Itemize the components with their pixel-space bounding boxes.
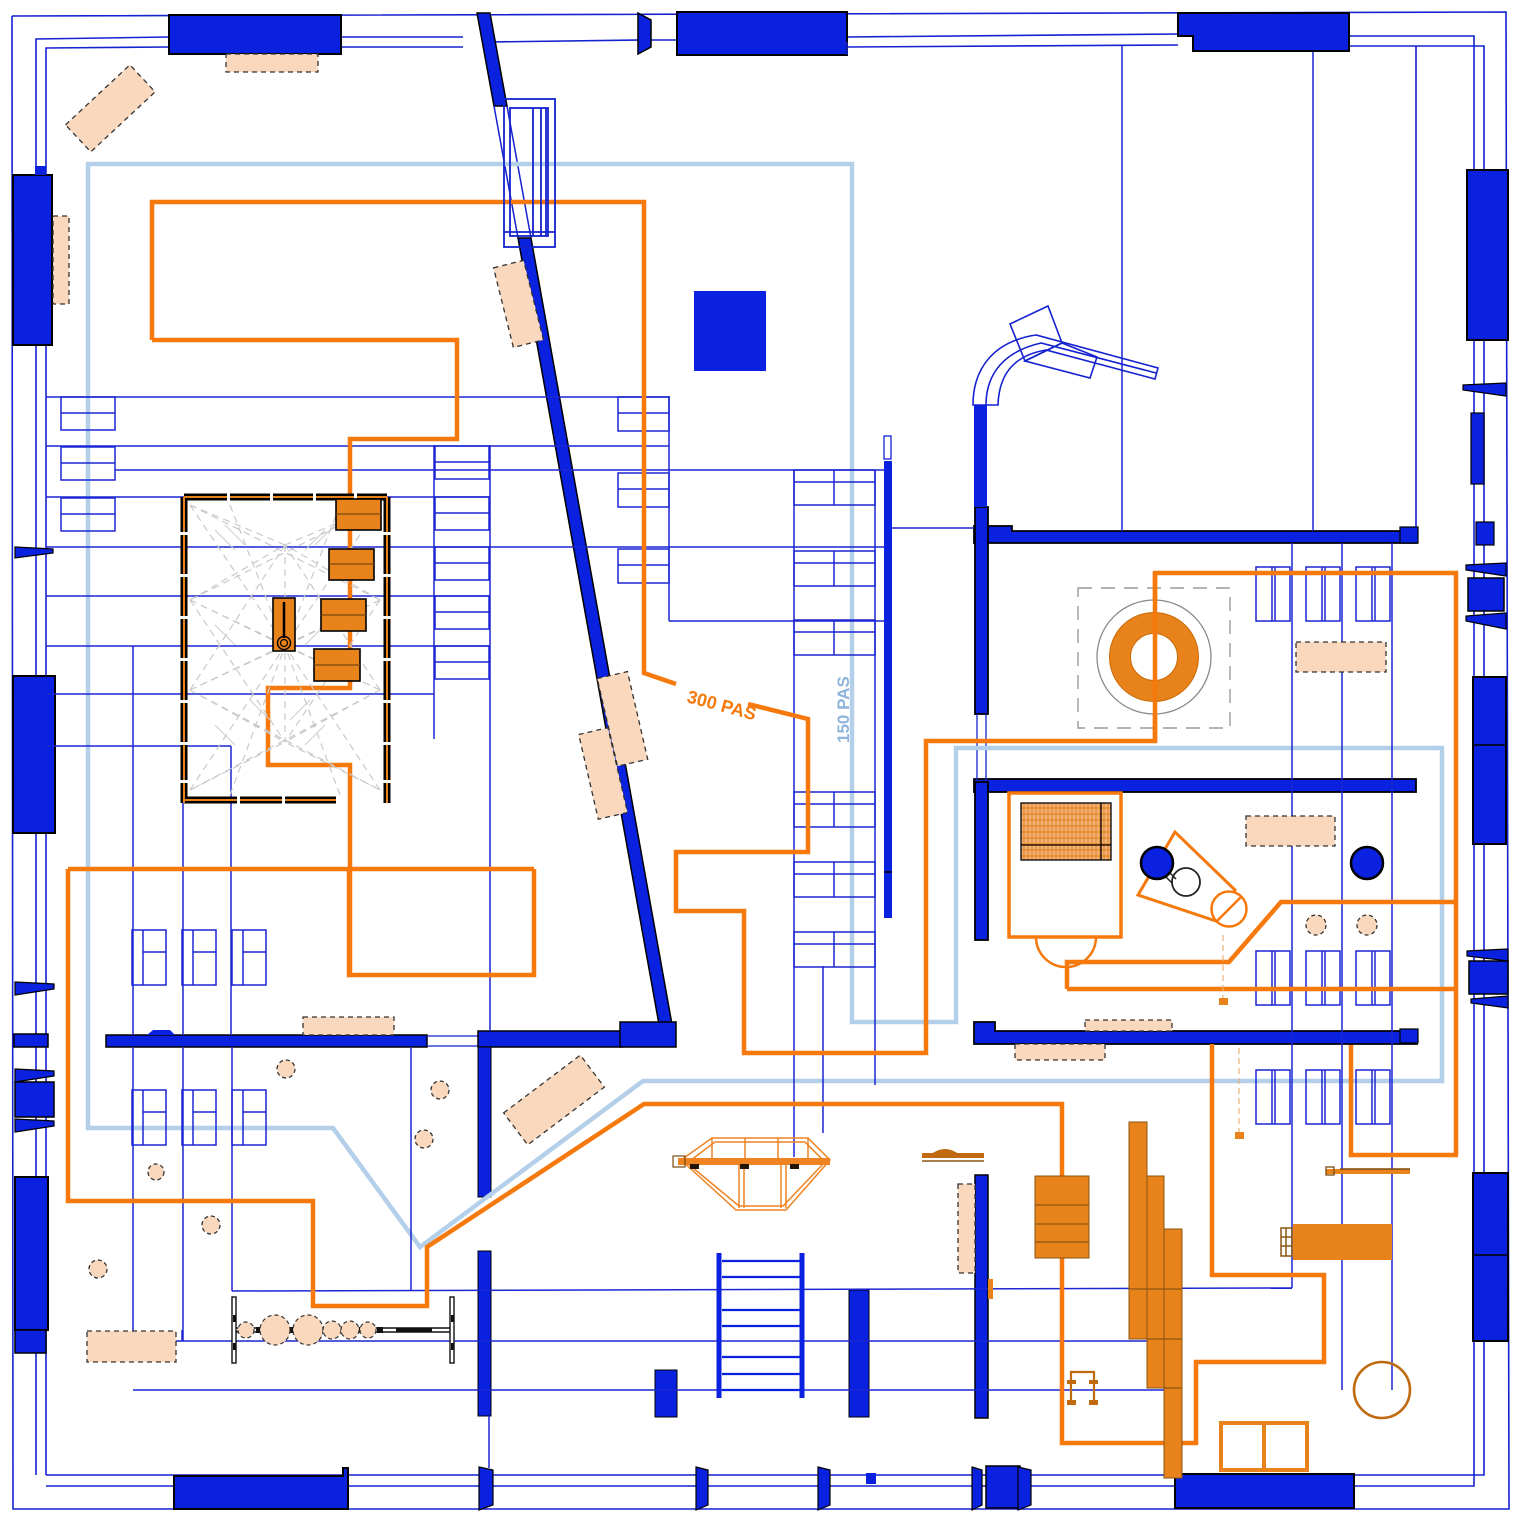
svg-text:150 PAS: 150 PAS — [834, 676, 853, 743]
